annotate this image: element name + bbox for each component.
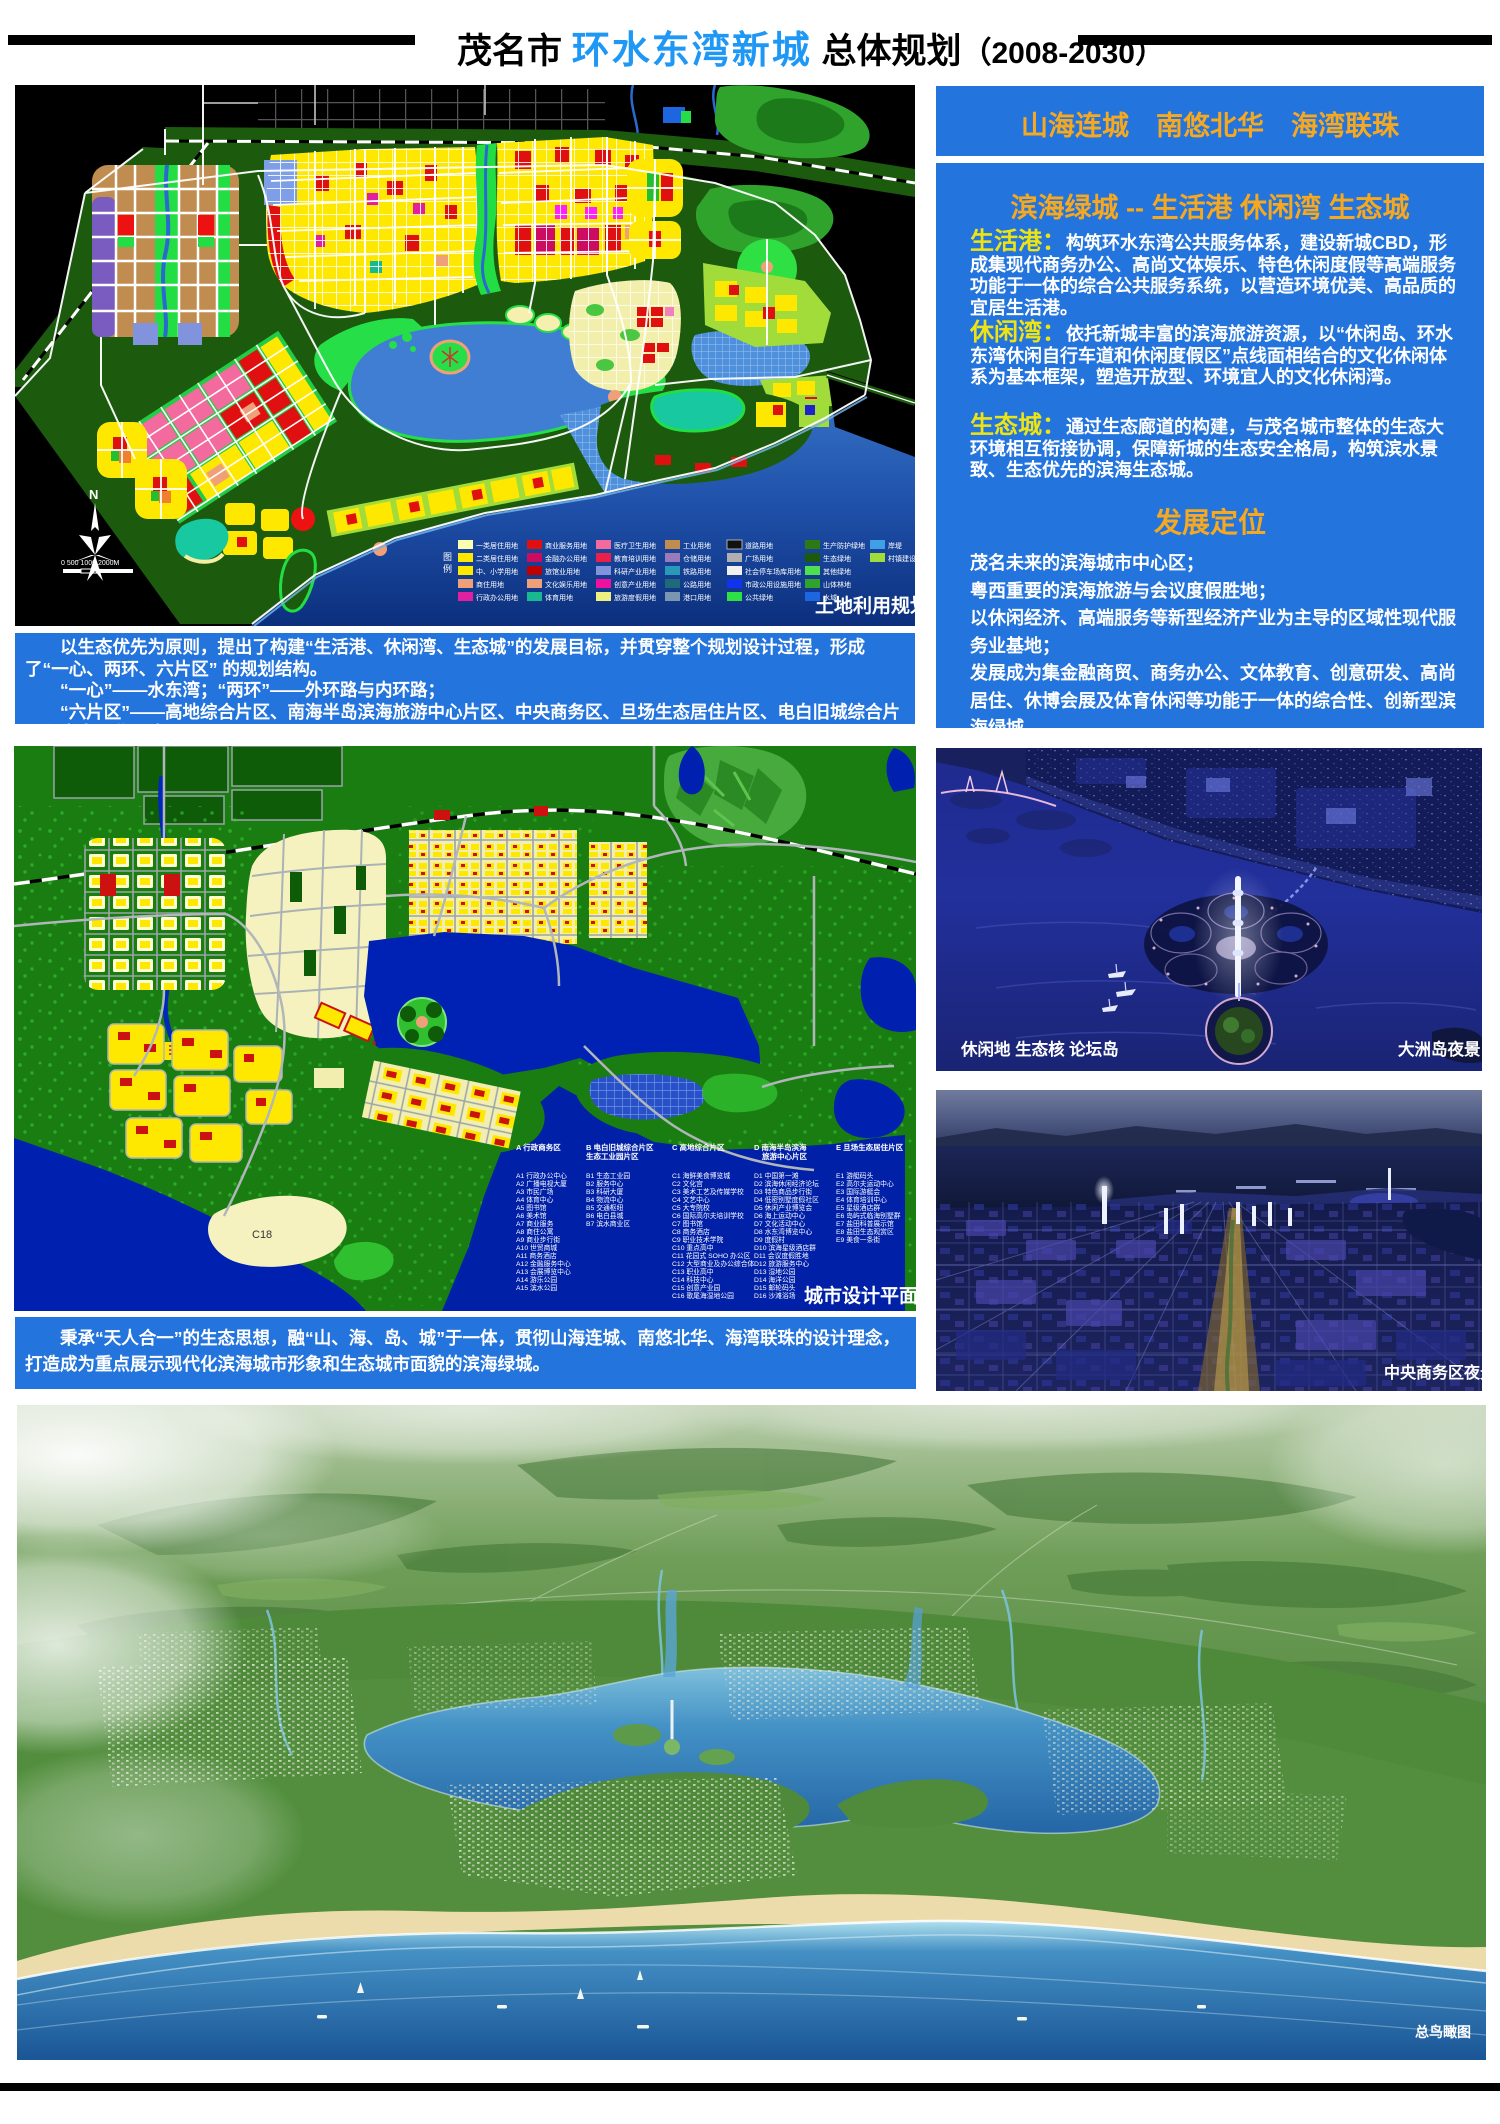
svg-text:山体林地: 山体林地 (823, 580, 851, 589)
svg-text:土地利用规划图: 土地利用规划图 (815, 594, 915, 617)
svg-text:一类居住用地: 一类居住用地 (476, 541, 518, 550)
svg-text:旅游中心片区: 旅游中心片区 (762, 1151, 807, 1161)
svg-text:铁路用地: 铁路用地 (683, 567, 711, 576)
svg-text:市政公用设施用地: 市政公用设施用地 (745, 580, 801, 589)
svg-text:N: N (89, 487, 98, 502)
svg-text:大洲岛夜景: 大洲岛夜景 (1398, 1039, 1481, 1059)
svg-text:商业服务用地: 商业服务用地 (545, 541, 587, 550)
svg-text:公路用地: 公路用地 (683, 580, 711, 589)
svg-text:生态工业园片区: 生态工业园片区 (586, 1151, 639, 1161)
svg-text:工业用地: 工业用地 (683, 541, 711, 550)
svg-text:图: 图 (443, 552, 452, 562)
svg-text:D 南海半岛滨海: D 南海半岛滨海 (754, 1142, 807, 1152)
svg-text:0 500 1000 2000M: 0 500 1000 2000M (61, 560, 120, 567)
svg-text:C 高地综合片区: C 高地综合片区 (672, 1142, 725, 1152)
svg-text:总鸟瞰图: 总鸟瞰图 (1415, 2024, 1471, 2040)
svg-text:B 电白旧城综合片区: B 电白旧城综合片区 (586, 1142, 654, 1152)
svg-text:中、小学用地: 中、小学用地 (476, 567, 518, 576)
svg-text:公共绿地: 公共绿地 (745, 593, 773, 602)
svg-text:村镇建设用地: 村镇建设用地 (888, 554, 915, 563)
svg-text:休闲地 生态核 论坛岛: 休闲地 生态核 论坛岛 (960, 1039, 1119, 1059)
svg-text:商住用地: 商住用地 (476, 580, 504, 589)
svg-text:教育培训用地: 教育培训用地 (614, 554, 656, 563)
svg-text:创意产业用地: 创意产业用地 (614, 580, 656, 589)
svg-text:社会停车场库用地: 社会停车场库用地 (745, 567, 801, 576)
svg-text:二类居住用地: 二类居住用地 (476, 554, 518, 563)
svg-text:A 行政商务区: A 行政商务区 (516, 1142, 561, 1152)
svg-text:广场用地: 广场用地 (745, 554, 773, 563)
svg-text:医疗卫生用地: 医疗卫生用地 (614, 541, 656, 550)
svg-text:中央商务区夜景: 中央商务区夜景 (1384, 1363, 1482, 1382)
svg-text:金融办公用地: 金融办公用地 (545, 554, 587, 563)
svg-text:科研产业用地: 科研产业用地 (614, 567, 656, 576)
svg-text:C18: C18 (252, 1229, 272, 1241)
svg-text:生产防护绿地: 生产防护绿地 (823, 541, 865, 550)
svg-text:文化娱乐用地: 文化娱乐用地 (545, 580, 587, 589)
svg-text:岸堤: 岸堤 (888, 541, 902, 550)
svg-text:道路用地: 道路用地 (745, 541, 773, 550)
svg-text:E 旦场生态居住片区: E 旦场生态居住片区 (836, 1142, 904, 1152)
svg-text:仓储用地: 仓储用地 (683, 554, 711, 563)
svg-text:其他绿地: 其他绿地 (823, 567, 851, 576)
svg-text:行政办公用地: 行政办公用地 (476, 593, 518, 602)
svg-text:旅游度假用地: 旅游度假用地 (614, 593, 656, 602)
svg-text:城市设计平面图: 城市设计平面图 (804, 1284, 916, 1307)
svg-text:生态绿地: 生态绿地 (823, 554, 851, 563)
svg-text:体育用地: 体育用地 (545, 593, 573, 602)
svg-text:港口用地: 港口用地 (683, 593, 711, 602)
svg-text:例: 例 (443, 563, 452, 574)
svg-text:旅馆业用地: 旅馆业用地 (545, 567, 580, 576)
